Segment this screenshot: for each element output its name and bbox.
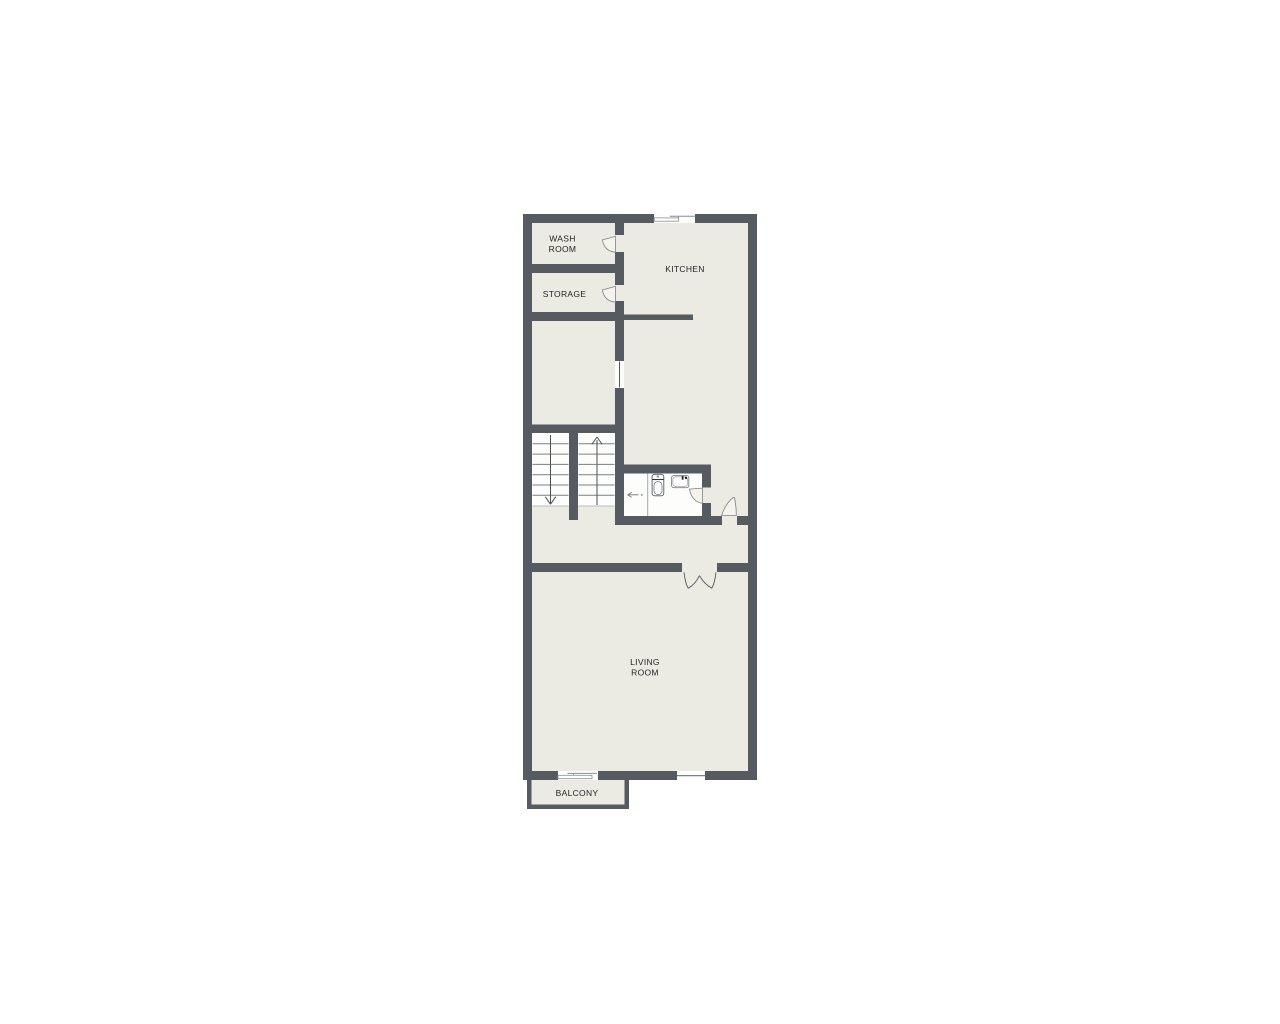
svg-text:KITCHEN: KITCHEN bbox=[665, 264, 704, 274]
svg-text:ROOM: ROOM bbox=[549, 244, 577, 254]
svg-text:LIVING: LIVING bbox=[630, 657, 660, 667]
svg-text:ROOM: ROOM bbox=[631, 667, 659, 677]
svg-text:WASH: WASH bbox=[549, 233, 575, 243]
svg-text:STORAGE: STORAGE bbox=[543, 289, 587, 299]
svg-text:BALCONY: BALCONY bbox=[556, 788, 599, 798]
